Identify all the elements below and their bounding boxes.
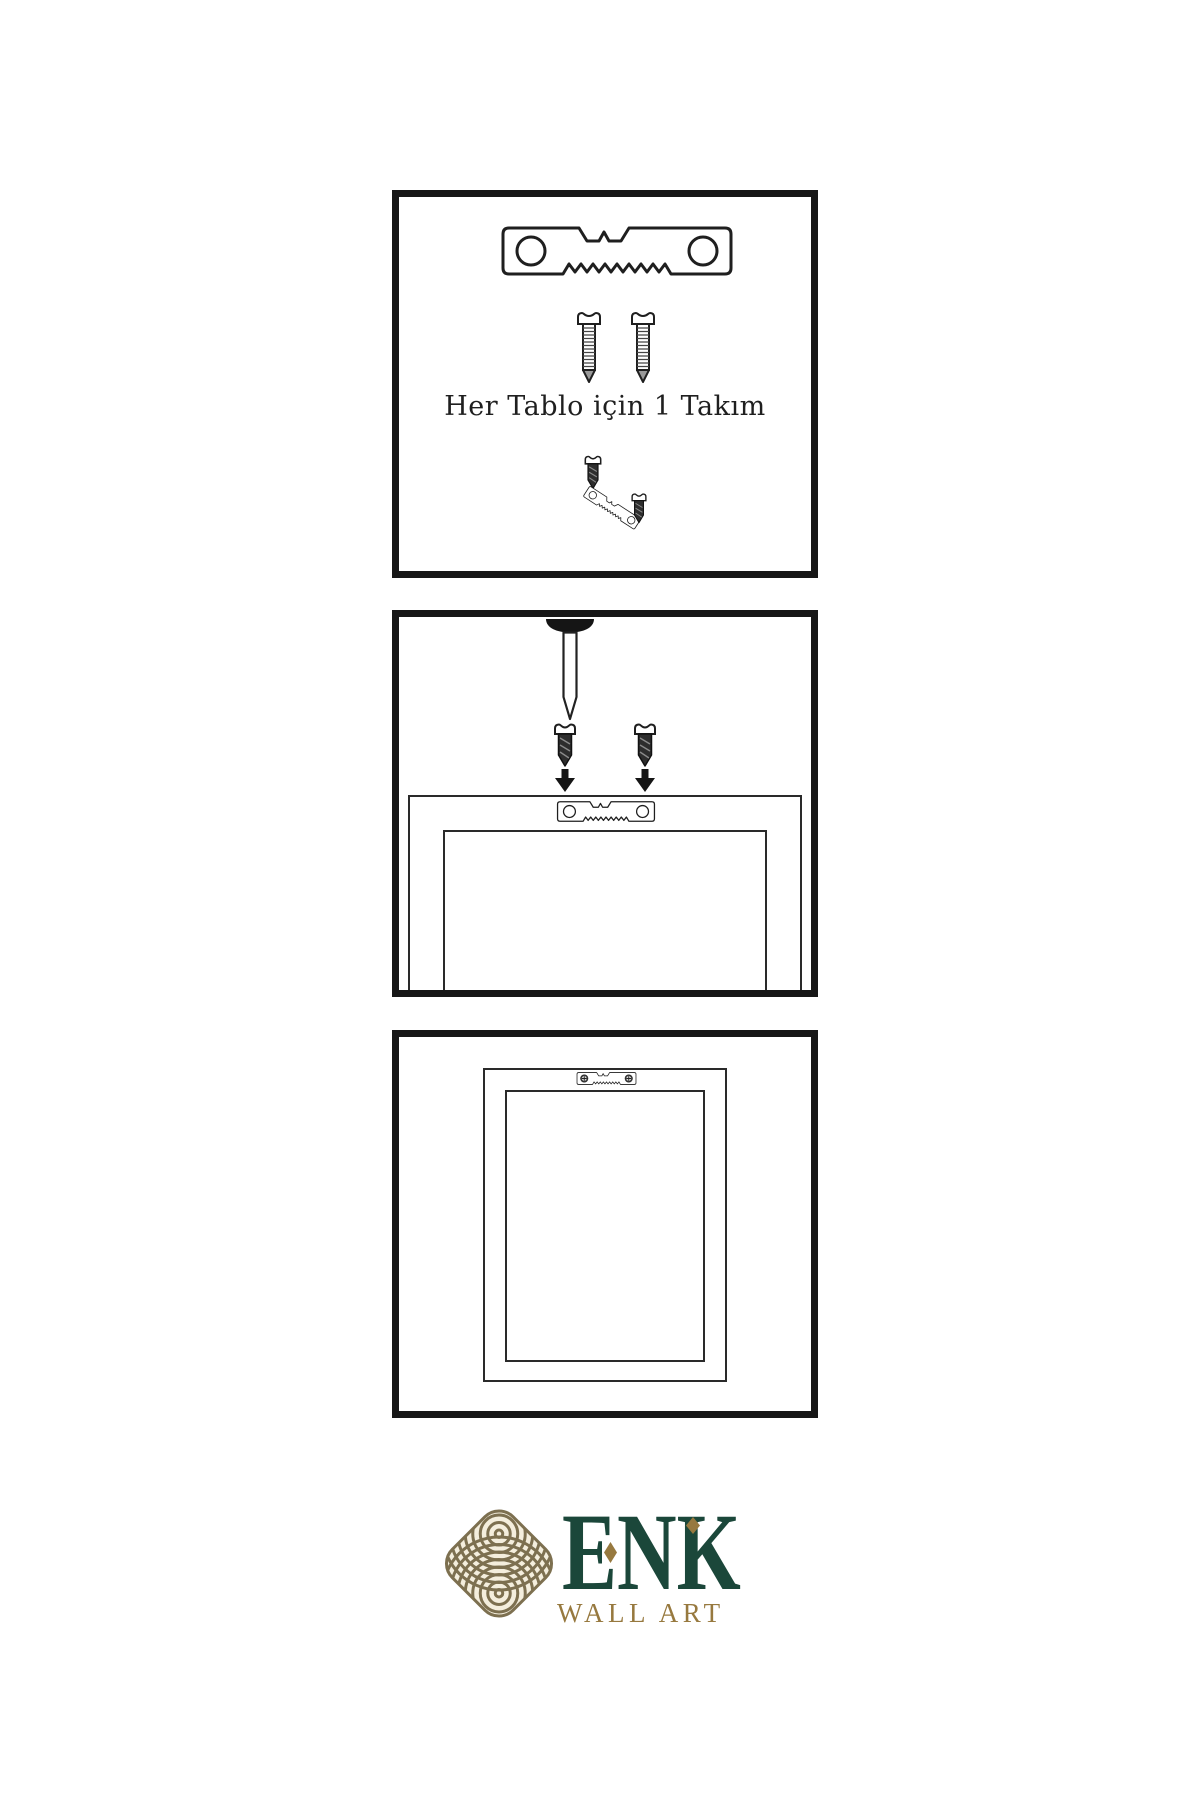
sawtooth-hanger-installed-icon xyxy=(575,1071,638,1086)
down-arrow-icon xyxy=(635,769,655,792)
panel-step1-hardware-kit: Her Tablo için 1 Takım xyxy=(392,190,818,578)
panel-step2-attach-hanger xyxy=(392,610,818,997)
down-arrow-icon xyxy=(555,769,575,792)
infographic-page: { "panel1": { "caption": "Her Tablo için… xyxy=(0,0,1200,1800)
frame-back-inner-edge xyxy=(505,1090,705,1362)
panel-step3-hanger-installed xyxy=(392,1030,818,1418)
frame-back-inner-edge xyxy=(443,830,767,990)
dark-screw-icon xyxy=(552,720,578,768)
brand-name: ENK xyxy=(562,1497,741,1607)
brand-subtitle: WALL ART xyxy=(557,1598,725,1629)
dark-screw-icon xyxy=(632,720,658,768)
dark-screw-icon xyxy=(583,453,603,490)
interlaced-knot-icon xyxy=(437,1500,561,1627)
screw-icon xyxy=(575,307,603,385)
kit-caption: Her Tablo için 1 Takım xyxy=(399,391,811,422)
sawtooth-hanger-icon xyxy=(497,222,737,280)
sawtooth-hanger-icon xyxy=(555,799,657,824)
wall-nail-icon xyxy=(546,617,594,723)
dark-screw-icon xyxy=(630,491,648,524)
screw-icon xyxy=(629,307,657,385)
